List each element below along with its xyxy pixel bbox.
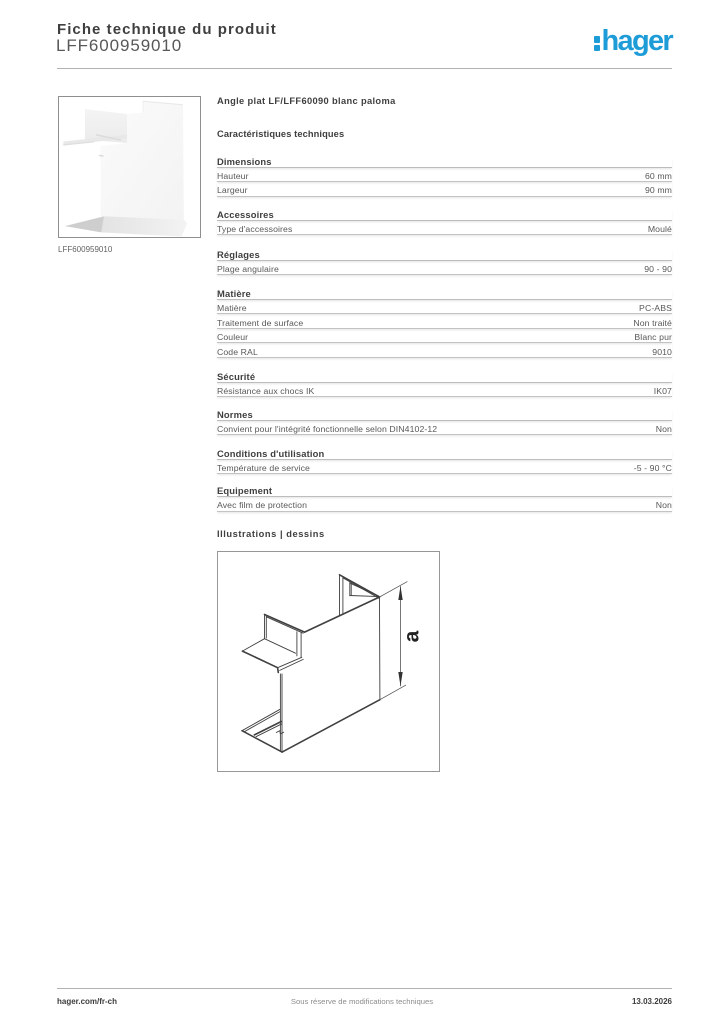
svg-text:a: a: [400, 630, 423, 642]
